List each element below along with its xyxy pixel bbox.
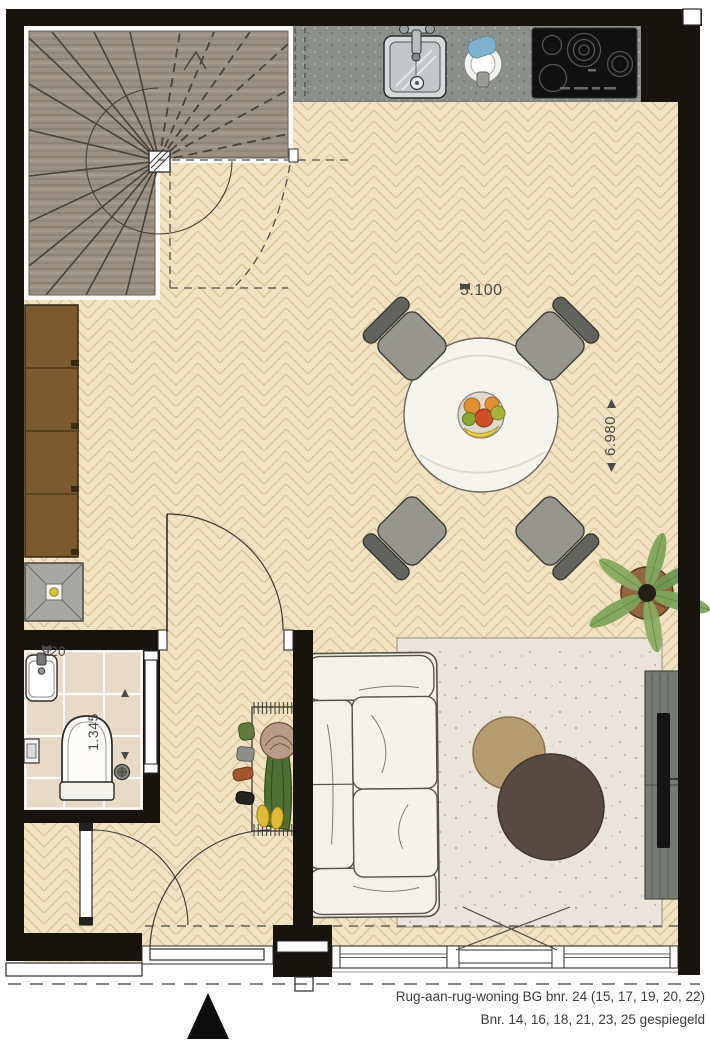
hat: [261, 723, 298, 760]
floor-plan: 5.100 6.980 920 1.345 Rug-aan-rug-woning…: [0, 0, 710, 1050]
wardrobe-cabinet: [25, 305, 79, 557]
dim-living-depth: 6.980: [602, 408, 622, 464]
toilet-paper-holder-icon: [24, 739, 39, 763]
caption-line-1: Rug-aan-rug-woning BG bnr. 24 (15, 17, 1…: [396, 985, 705, 1008]
corner-notch: [683, 9, 701, 25]
caption-line-2: Bnr. 14, 16, 18, 21, 23, 25 gespiegeld: [396, 1008, 705, 1031]
tv: [657, 713, 670, 848]
dim-arrow-right-icon: [42, 644, 51, 652]
fruit-bowl-icon: [458, 392, 505, 438]
toilet-door: [144, 651, 158, 773]
sofa: [303, 652, 440, 917]
hand-basin: [26, 653, 57, 701]
dim-toilet-depth: 1.345: [85, 703, 105, 761]
dim-toilet-width: 920: [42, 644, 66, 659]
caption: Rug-aan-rug-woning BG bnr. 24 (15, 17, 1…: [396, 985, 705, 1031]
dim-living-width: 5.100: [460, 282, 503, 300]
dim-arrow-right-icon: [460, 282, 470, 291]
coffee-table-large: [498, 754, 604, 860]
cooktop: [532, 28, 637, 98]
floor-plan-drawing: [0, 0, 710, 1050]
floor-drain-icon: [115, 765, 130, 780]
meter-cupboard-sill: [6, 963, 142, 976]
pier-inset: [277, 941, 328, 952]
side-table: [25, 563, 83, 621]
